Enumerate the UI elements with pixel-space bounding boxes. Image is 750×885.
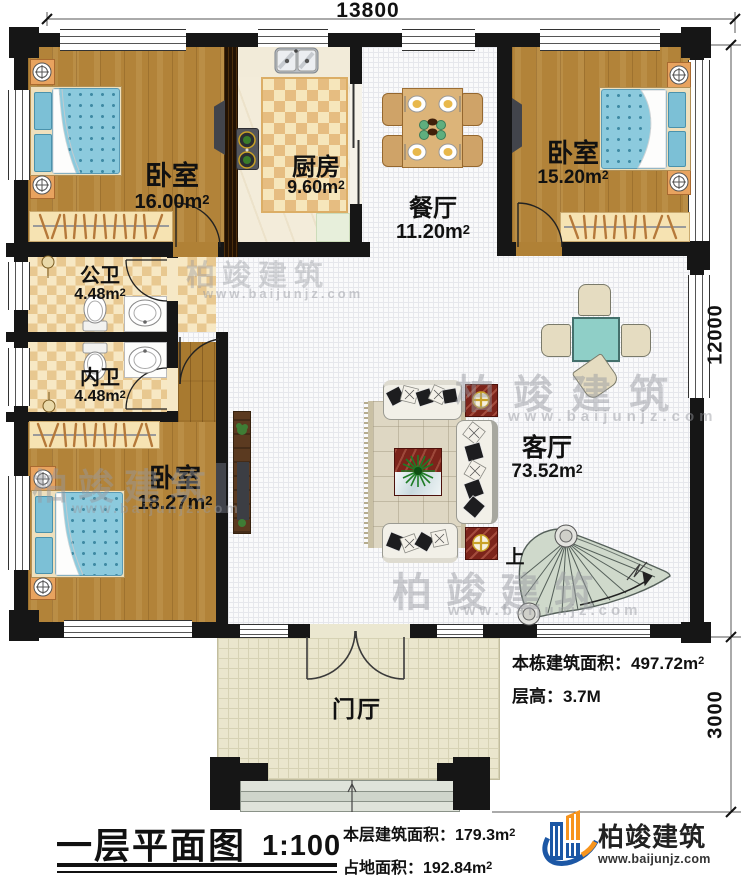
svg-text:柏竣建筑: 柏竣建筑 <box>598 822 706 852</box>
svg-text:www.baijunjz.com: www.baijunjz.com <box>597 852 711 866</box>
